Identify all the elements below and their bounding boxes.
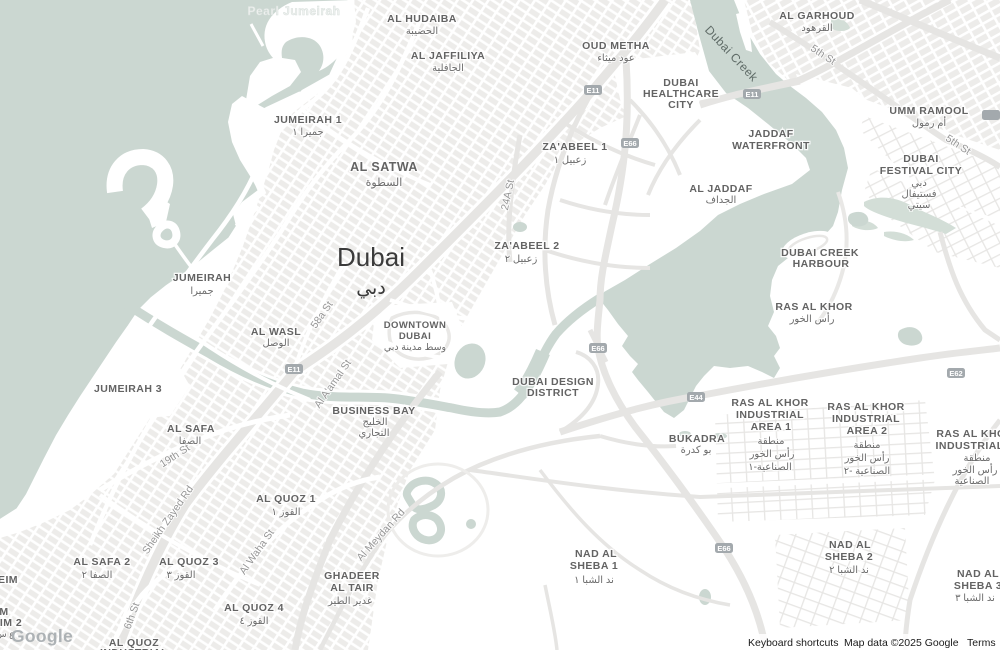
svg-text:Pearl Jumeirah: Pearl Jumeirah [247, 4, 340, 18]
svg-text:BUKADRA: BUKADRA [669, 433, 725, 445]
svg-text:AL HUDAIBA: AL HUDAIBA [387, 13, 457, 25]
svg-text:دبي: دبي [356, 278, 386, 299]
svg-text:ZA'ABEEL 1: ZA'ABEEL 1 [542, 141, 607, 153]
svg-text:AL QUOZ 4: AL QUOZ 4 [224, 602, 284, 614]
svg-text:ند الشبا ٢: ند الشبا ٢ [829, 565, 869, 576]
svg-text:Keyboard shortcuts: Keyboard shortcuts [748, 637, 838, 649]
svg-text:E11: E11 [288, 365, 301, 374]
svg-text:SHEBA 1: SHEBA 1 [570, 560, 618, 572]
svg-text:بو كدرة: بو كدرة [681, 445, 712, 456]
svg-text:DISTRICT: DISTRICT [527, 387, 579, 399]
svg-text:زعبيل ١: زعبيل ١ [554, 155, 587, 166]
svg-text:Terms: Terms [967, 637, 996, 649]
svg-text:سيتي: سيتي [908, 200, 931, 211]
svg-text:AL TAIR: AL TAIR [330, 582, 374, 594]
svg-text:منطقة: منطقة [854, 440, 881, 451]
svg-text:غدير الطير: غدير الطير [327, 596, 372, 607]
svg-text:E11: E11 [746, 90, 759, 99]
svg-text:AL SATWA: AL SATWA [350, 160, 418, 174]
svg-text:AL JAFFILIYA: AL JAFFILIYA [411, 50, 485, 62]
svg-text:NAD AL: NAD AL [829, 539, 871, 551]
svg-text:HARBOUR: HARBOUR [793, 258, 850, 270]
svg-text:INDUSTRIAL: INDUSTRIAL [736, 409, 804, 421]
svg-text:القوز ٤: القوز ٤ [239, 616, 268, 627]
svg-text:الصفا ٢: الصفا ٢ [82, 570, 113, 581]
svg-text:NAD AL: NAD AL [575, 548, 617, 560]
svg-text:JADDAF: JADDAF [748, 128, 793, 140]
svg-text:AL GARHOUD: AL GARHOUD [779, 10, 854, 22]
svg-text:CITY: CITY [668, 99, 694, 111]
svg-text:DUBAI: DUBAI [903, 153, 939, 165]
svg-text:Dubai: Dubai [337, 242, 405, 272]
svg-text:الصناعية -٢: الصناعية -٢ [844, 466, 890, 477]
svg-text:رأس الخور: رأس الخور [844, 451, 890, 464]
svg-text:زعبيل ٢: زعبيل ٢ [505, 254, 538, 265]
svg-text:القوز ٣: القوز ٣ [166, 570, 195, 581]
svg-text:Map data ©2025 Google: Map data ©2025 Google [844, 637, 959, 649]
svg-text:OUD METHA: OUD METHA [582, 40, 650, 52]
svg-text:السطوة: السطوة [366, 177, 403, 189]
svg-text:AREA 2: AREA 2 [847, 425, 888, 437]
svg-text:INDUSTRIAL: INDUSTRIAL [832, 413, 900, 425]
svg-text:JUMEIRAH 1: JUMEIRAH 1 [274, 114, 342, 126]
svg-text:NAD AL: NAD AL [957, 568, 999, 580]
svg-text:WATERFRONT: WATERFRONT [732, 140, 810, 152]
svg-text:SHEBA 3: SHEBA 3 [954, 580, 1000, 592]
svg-text:RAS AL KHOR: RAS AL KHOR [827, 401, 904, 413]
svg-text:E11: E11 [587, 86, 600, 95]
svg-text:E62: E62 [949, 369, 962, 378]
svg-text:E66: E66 [591, 344, 604, 353]
svg-text:منطقة: منطقة [758, 436, 785, 447]
svg-text:AL QUOZ 1: AL QUOZ 1 [256, 493, 316, 505]
svg-text:فستيفال: فستيفال [901, 189, 936, 200]
svg-text:عود ميثاء: عود ميثاء [597, 53, 635, 64]
svg-text:Google: Google [11, 626, 73, 646]
svg-text:ند الشبا ٣: ند الشبا ٣ [955, 593, 995, 604]
svg-text:ZA'ABEEL 2: ZA'ABEEL 2 [494, 240, 559, 252]
svg-text:BUSINESS BAY: BUSINESS BAY [332, 405, 415, 417]
svg-text:الجداف: الجداف [706, 195, 737, 206]
svg-text:رأس الخور: رأس الخور [789, 312, 835, 325]
svg-text:AL SAFA: AL SAFA [167, 423, 215, 435]
svg-text:E66: E66 [623, 139, 636, 148]
svg-text:RAS AL KHOR: RAS AL KHOR [731, 397, 808, 409]
svg-text:RAS AL KHOR: RAS AL KHOR [936, 428, 1000, 440]
svg-text:الصناعية: الصناعية [955, 476, 990, 487]
svg-text:JUMEIRAH: JUMEIRAH [173, 272, 231, 284]
svg-text:UMM RAMOOL: UMM RAMOOL [889, 105, 968, 117]
svg-text:أم رمول: أم رمول [912, 116, 947, 129]
svg-text:الخليج: الخليج [362, 417, 387, 428]
svg-text:DOWNTOWN: DOWNTOWN [384, 320, 447, 331]
svg-text:AL QUOZ 3: AL QUOZ 3 [159, 556, 219, 568]
svg-text:الصناعية-١: الصناعية-١ [748, 462, 792, 473]
svg-text:الحضيبة: الحضيبة [406, 26, 438, 37]
svg-text:الجافلية: الجافلية [432, 63, 464, 74]
svg-text:GHADEER: GHADEER [324, 570, 380, 582]
svg-text:EIM: EIM [0, 574, 18, 586]
svg-text:رأس الخور: رأس الخور [749, 447, 795, 460]
svg-text:القوز ١: القوز ١ [271, 507, 300, 518]
svg-text:الوصل: الوصل [262, 338, 289, 349]
svg-text:دبي: دبي [911, 178, 927, 189]
svg-text:جميرا ١: جميرا ١ [292, 127, 323, 138]
svg-text:E66: E66 [717, 544, 730, 553]
svg-text:القرهود: القرهود [801, 23, 832, 34]
svg-text:AL JADDAF: AL JADDAF [689, 183, 752, 195]
svg-text:رأس الخور: رأس الخور [952, 463, 998, 476]
svg-text:وسط مدينة دبي: وسط مدينة دبي [384, 342, 446, 353]
svg-text:INDUSTRIAL A: INDUSTRIAL A [936, 440, 1000, 452]
svg-text:FESTIVAL CITY: FESTIVAL CITY [880, 165, 962, 177]
svg-text:RAS AL KHOR: RAS AL KHOR [775, 301, 852, 313]
svg-text:JUMEIRAH 3: JUMEIRAH 3 [94, 383, 162, 395]
svg-text:SHEBA 2: SHEBA 2 [825, 551, 873, 563]
svg-text:جميرا: جميرا [190, 286, 213, 297]
svg-text:AREA 1: AREA 1 [751, 421, 792, 433]
svg-text:E44: E44 [689, 393, 703, 402]
svg-text:AL WASL: AL WASL [251, 326, 301, 338]
svg-text:التجاري: التجاري [358, 428, 389, 439]
svg-text:ند الشبا ١: ند الشبا ١ [574, 575, 614, 586]
svg-text:DUBAI: DUBAI [399, 331, 431, 342]
svg-text:AL SAFA 2: AL SAFA 2 [73, 556, 130, 568]
svg-text:منطقة: منطقة [964, 453, 991, 464]
